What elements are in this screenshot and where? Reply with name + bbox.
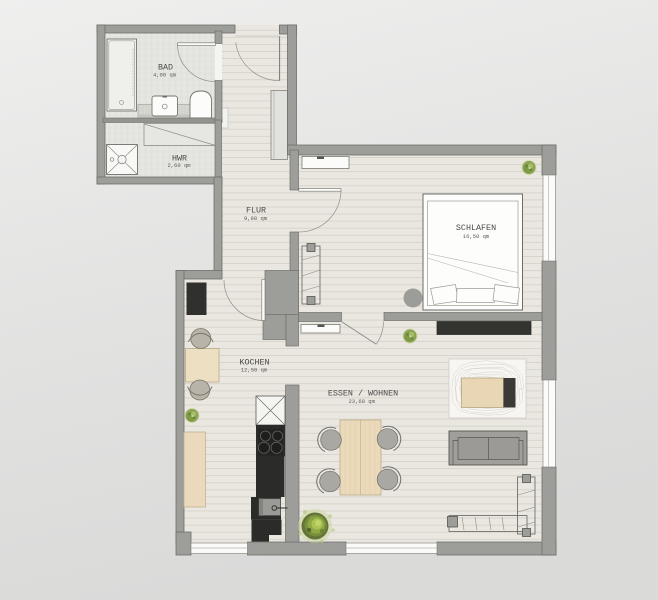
svg-text:9,90 qm: 9,90 qm (244, 215, 268, 222)
svg-text:ESSEN / WOHNEN: ESSEN / WOHNEN (328, 389, 398, 399)
svg-text:12,50 qm: 12,50 qm (241, 367, 268, 374)
svg-text:SCHLAFEN: SCHLAFEN (456, 223, 496, 233)
svg-text:16,50 qm: 16,50 qm (463, 233, 490, 240)
svg-text:FLUR: FLUR (246, 206, 266, 216)
svg-text:2,60 qm: 2,60 qm (167, 162, 191, 169)
svg-text:23,60 qm: 23,60 qm (348, 398, 375, 405)
svg-text:4,00 qm: 4,00 qm (153, 72, 177, 79)
